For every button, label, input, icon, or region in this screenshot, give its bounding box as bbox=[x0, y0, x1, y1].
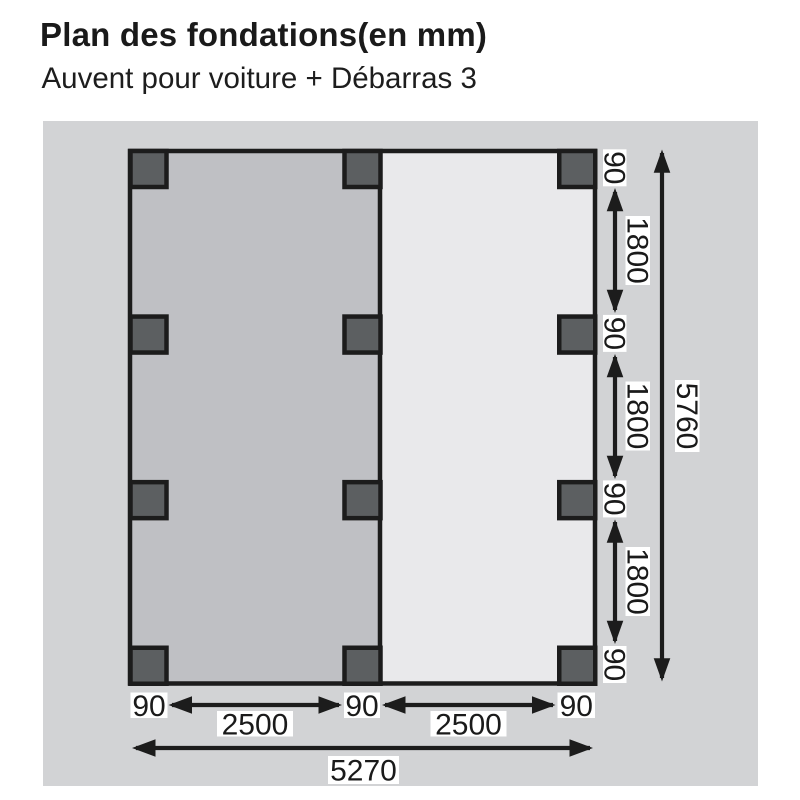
svg-text:90: 90 bbox=[597, 482, 630, 515]
svg-text:90: 90 bbox=[597, 151, 630, 184]
svg-text:2500: 2500 bbox=[435, 708, 502, 741]
svg-text:1800: 1800 bbox=[620, 548, 653, 615]
svg-text:5270: 5270 bbox=[330, 755, 397, 788]
svg-text:90: 90 bbox=[132, 690, 165, 723]
svg-text:2500: 2500 bbox=[222, 708, 289, 741]
svg-text:1800: 1800 bbox=[620, 383, 653, 450]
svg-text:90: 90 bbox=[597, 317, 630, 350]
svg-text:90: 90 bbox=[345, 690, 378, 723]
svg-text:90: 90 bbox=[597, 648, 630, 681]
svg-text:1800: 1800 bbox=[620, 217, 653, 284]
svg-text:5760: 5760 bbox=[670, 383, 703, 450]
svg-text:90: 90 bbox=[560, 690, 593, 723]
